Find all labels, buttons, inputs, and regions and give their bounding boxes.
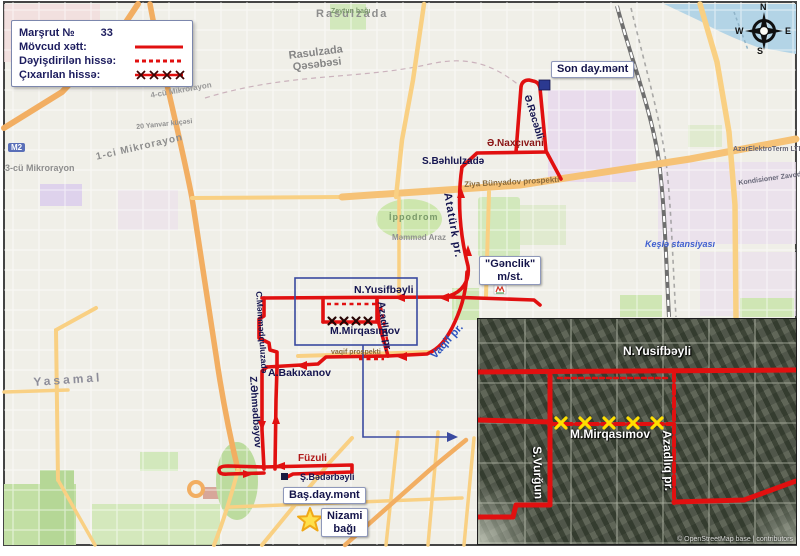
satellite-inset: N.Yusifbəyli M.Mirqasımov S.Vurğun Azadl… — [477, 318, 797, 545]
x-line-swatch — [133, 69, 185, 81]
street-label-badarbeyli: Ş.Bədərbəyli — [300, 473, 355, 482]
nizami-line1: Nizami — [327, 510, 362, 523]
dashed-line-swatch — [133, 55, 185, 67]
compass-south-label: S — [757, 46, 763, 56]
area-label-ippodrom: İppodrom — [389, 213, 439, 223]
route-number: 33 — [101, 27, 113, 39]
legend-removed-label: Çıxarılan hissə: — [19, 69, 133, 81]
street-label-mammad-araz: Məmməd Araz — [392, 234, 446, 243]
nizami-line2: bağı — [327, 523, 362, 536]
legend-title-row: Marşrut № 33 — [19, 26, 185, 39]
street-label-bakixanov: A.Bakıxanov — [268, 368, 331, 379]
area-label-mikrorayon3: 3-cü Mikrorayon — [5, 164, 75, 174]
legend-removed-row: Çıxarılan hissə: — [19, 68, 185, 81]
legend-existing-row: Mövcud xətt: — [19, 40, 185, 53]
metro-icon — [494, 285, 506, 294]
inset-label-vurgun: S.Vurğun — [530, 446, 546, 499]
area-label-elektroterm: AzərElektroTerm LTD — [733, 146, 800, 154]
street-label-yusifbeyli: N.Yusifbəyli — [354, 285, 414, 296]
legend-changed-label: Dəyişdirilən hissə: — [19, 55, 133, 67]
genclik-line2: m/st. — [485, 271, 535, 284]
genclik-station-label: "Gənclik" m/st. — [479, 256, 541, 285]
legend-changed-row: Dəyişdirilən hissə: — [19, 54, 185, 67]
route-map-figure: Marşrut № 33 Mövcud xətt: Dəyişdirilən h… — [0, 0, 800, 556]
inset-copyright: © OpenStreetMap base | contributors — [677, 536, 793, 543]
start-terminal-marker — [281, 473, 288, 480]
genclik-line1: "Gənclik" — [485, 258, 535, 271]
inset-route-line — [478, 370, 796, 517]
legend-route-label: Marşrut № — [19, 27, 75, 39]
area-label-kesle: Keşlə stansiyası — [645, 240, 715, 250]
end-terminal-marker — [539, 80, 550, 90]
legend-box: Marşrut № 33 Mövcud xətt: Dəyişdirilən h… — [11, 20, 193, 87]
inset-label-azadliq: Azadlıq pr. — [660, 430, 676, 491]
compass-north-label: N — [760, 2, 767, 12]
end-terminal-label: Son day.mənt — [551, 61, 634, 78]
inset-junction-dot — [547, 419, 553, 425]
street-label-bahlulzade: S.Bəhlulzadə — [422, 157, 484, 168]
street-label-fuzuli: Füzuli — [298, 454, 327, 465]
inset-label-yusifbeyli: N.Yusifbəyli — [623, 344, 691, 358]
legend-existing-label: Mövcud xətt: — [19, 41, 133, 53]
nizami-park-label: Nizami bağı — [321, 508, 368, 537]
compass-east-label: E — [785, 26, 791, 36]
compass-west-label: W — [735, 26, 744, 36]
inset-label-mirqasimov: M.Mirqasımov — [570, 427, 650, 441]
street-label-vaqif-prospekti: vaqif prospekti — [331, 349, 381, 357]
m2-road-badge: M2 — [8, 143, 25, 152]
area-label-zeytun: Zeytun bağı — [331, 8, 370, 16]
start-terminal-label: Baş.day.mənt — [283, 487, 366, 504]
solid-line-swatch — [133, 41, 185, 53]
